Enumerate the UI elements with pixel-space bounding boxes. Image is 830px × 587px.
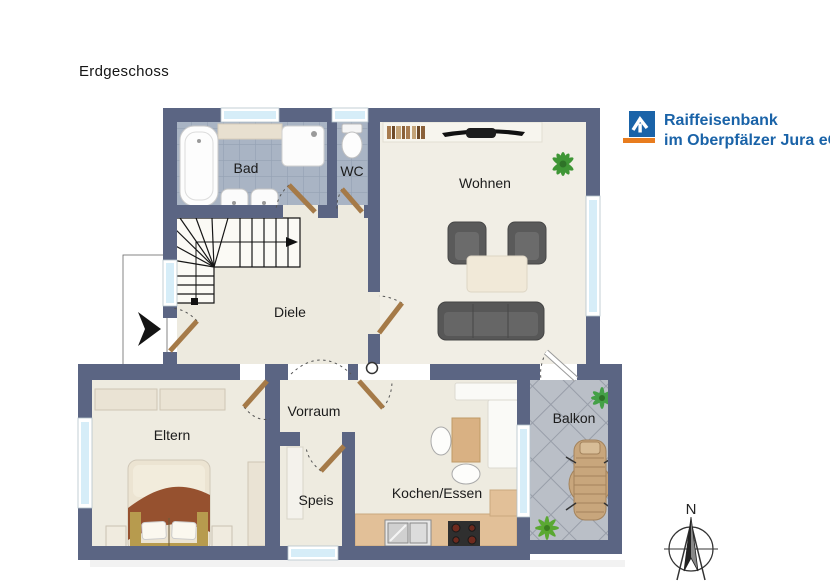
- bathtub-drain: [197, 139, 201, 143]
- shower: [282, 126, 324, 166]
- room-label-balkon: Balkon: [553, 410, 596, 426]
- pillow-right: [172, 521, 197, 539]
- stairs-newel-post: [191, 298, 198, 305]
- room-label-wohnen: Wohnen: [459, 175, 511, 191]
- entrance-porch-outline: [123, 255, 167, 365]
- kitchen-sink: [385, 520, 431, 546]
- pantry-shelf: [287, 447, 303, 519]
- kitchen-cabinet-side: [488, 400, 518, 468]
- wardrobe-side: [248, 462, 266, 546]
- room-label-wc: WC: [340, 163, 363, 179]
- window-kochen-balkon: [517, 425, 530, 517]
- double-bed: [128, 460, 210, 552]
- nightstand-right: [212, 526, 232, 548]
- room-label-diele: Diele: [274, 304, 306, 320]
- stove: [448, 521, 480, 546]
- wardrobe-right: [160, 389, 225, 410]
- dining-chair-bottom: [452, 464, 480, 484]
- kitchen-cabinet-top: [455, 383, 520, 400]
- plant-icon: [535, 516, 559, 540]
- room-label-bad: Bad: [234, 160, 259, 176]
- window-wc: [332, 108, 368, 122]
- bookshelf: [387, 126, 425, 139]
- toilet: [342, 132, 362, 158]
- room-label-vorraum: Vorraum: [288, 403, 341, 419]
- room-label-speis: Speis: [298, 492, 333, 508]
- wardrobe-left: [95, 389, 157, 410]
- window-bad: [221, 108, 279, 122]
- kitchen-counter: [355, 514, 517, 546]
- compass-north-label: N: [686, 501, 697, 518]
- window-wohnen: [586, 196, 600, 316]
- floorplan-drawing: Bad WC Wohnen Diele Eltern Vorraum Speis…: [0, 0, 830, 587]
- dining-table: [452, 418, 480, 462]
- window-speis: [288, 546, 338, 560]
- shower-drain: [311, 131, 317, 137]
- wc-furniture: [342, 124, 362, 158]
- room-label-eltern: Eltern: [154, 427, 191, 443]
- door-stopper: [367, 363, 378, 374]
- window-diele: [163, 260, 177, 306]
- floorplan-page: Erdgeschoss Raiffeisenbank im Oberpfälze…: [0, 0, 830, 587]
- nightstand-left: [106, 526, 126, 548]
- dining-chair-left: [431, 427, 451, 455]
- bath-shelf: [218, 124, 282, 139]
- coffee-table: [467, 256, 527, 292]
- room-label-kochen-essen: Kochen/Essen: [392, 485, 482, 501]
- window-eltern: [78, 418, 92, 508]
- compass-rose: N: [664, 501, 718, 580]
- pillow-left: [142, 521, 167, 539]
- plan-shadow: [90, 560, 625, 567]
